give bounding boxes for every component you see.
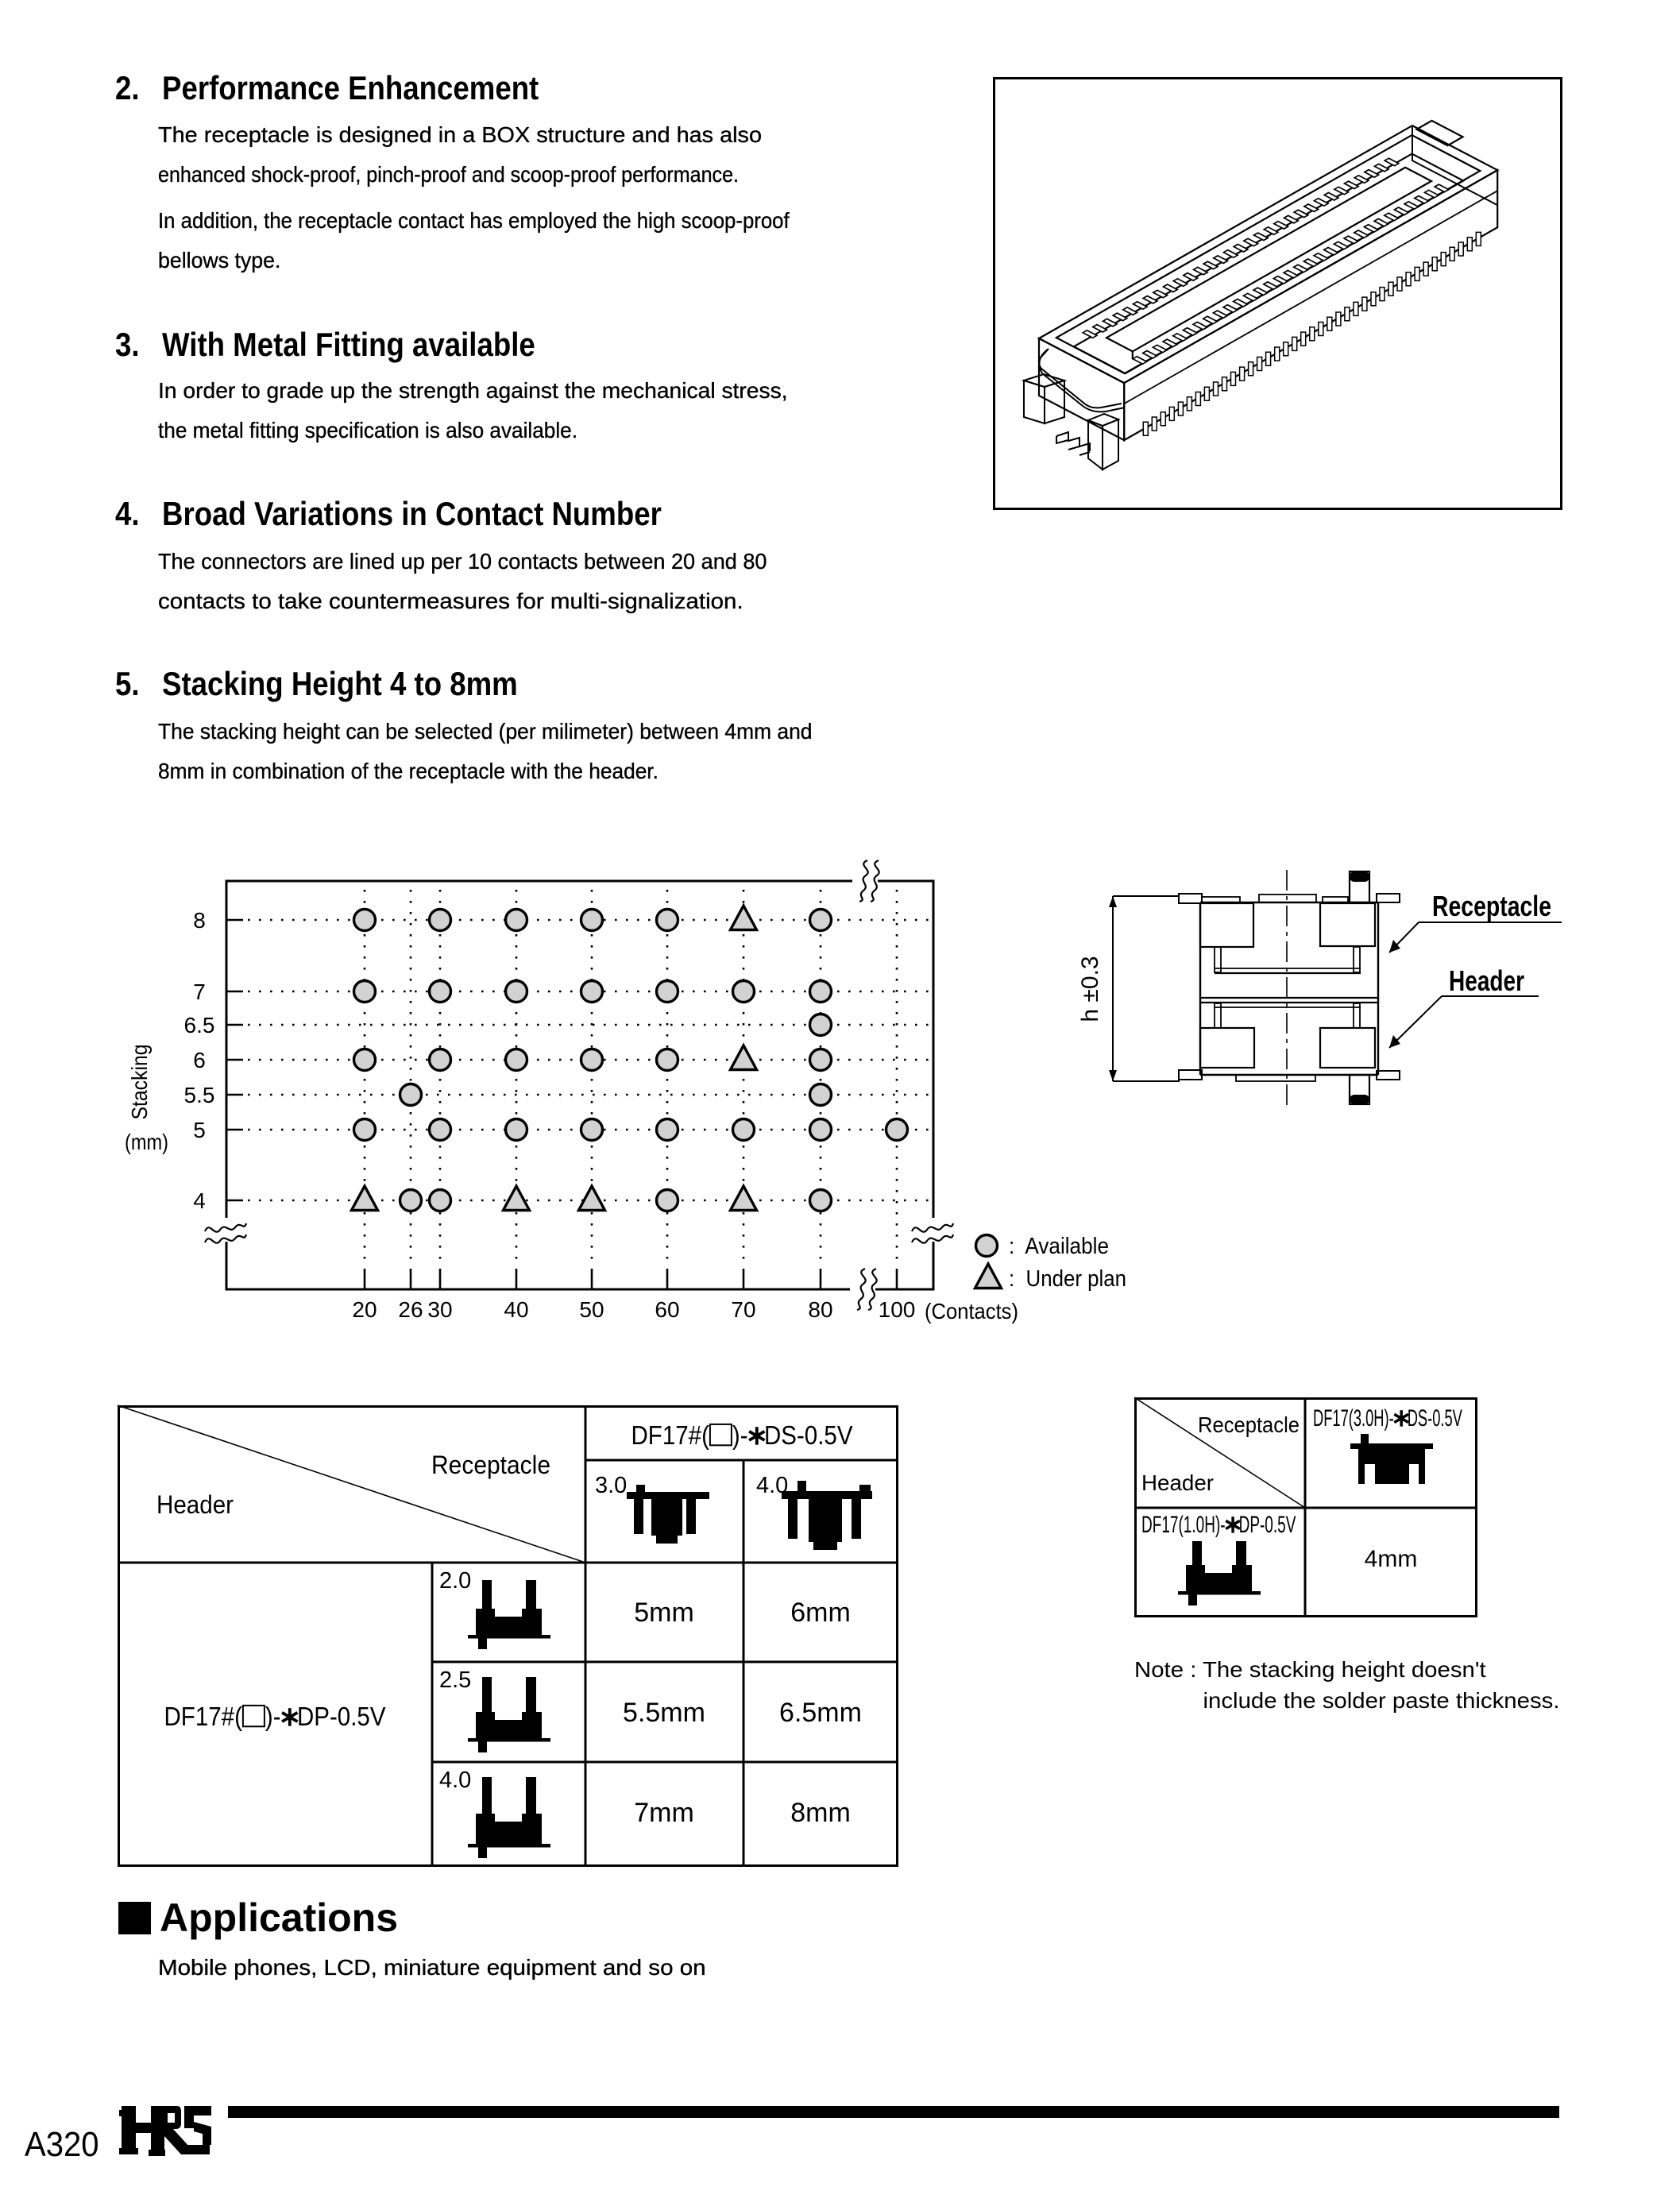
svg-text:50: 50 <box>579 1297 604 1322</box>
svg-text:4: 4 <box>193 1188 206 1213</box>
svg-text:80: 80 <box>808 1297 832 1322</box>
svg-text:20: 20 <box>352 1297 377 1322</box>
svg-text:6.5mm: 6.5mm <box>779 1698 862 1728</box>
svg-text:5mm: 5mm <box>634 1598 694 1628</box>
svg-text:Receptacle: Receptacle <box>1198 1412 1300 1437</box>
svg-text:Receptacle: Receptacle <box>1432 890 1551 922</box>
svg-text:26: 26 <box>398 1297 423 1322</box>
svg-text:Header: Header <box>156 1490 234 1519</box>
svg-text:7mm: 7mm <box>634 1798 694 1828</box>
svg-text:DS-0.5V: DS-0.5V <box>764 1420 853 1450</box>
svg-text:Header: Header <box>1449 964 1524 997</box>
svg-text:6.5: 6.5 <box>184 1013 215 1037</box>
svg-text:DP-0.5V: DP-0.5V <box>1239 1512 1296 1538</box>
svg-text:h ±0.3: h ±0.3 <box>1077 956 1103 1022</box>
svg-text:5: 5 <box>193 1118 206 1142</box>
svg-text:(Contacts): (Contacts) <box>925 1299 1018 1323</box>
svg-text:)-: )- <box>265 1702 281 1731</box>
svg-text:DF17(1.0H)-: DF17(1.0H)- <box>1141 1512 1226 1538</box>
svg-text:2.0: 2.0 <box>439 1568 471 1594</box>
svg-text:Header: Header <box>1141 1470 1214 1495</box>
svg-text:DF17#(: DF17#( <box>631 1420 709 1450</box>
svg-text:4.0: 4.0 <box>439 1768 471 1793</box>
svg-text:: Under plan: : Under plan <box>1009 1266 1126 1292</box>
svg-text:2.5: 2.5 <box>439 1667 471 1693</box>
svg-text:60: 60 <box>655 1297 679 1322</box>
svg-text:(mm): (mm) <box>125 1130 168 1154</box>
svg-text:6mm: 6mm <box>790 1598 851 1628</box>
svg-text:4mm: 4mm <box>1365 1546 1418 1572</box>
svg-text:70: 70 <box>731 1297 755 1322</box>
svg-text:5.5mm: 5.5mm <box>623 1698 705 1728</box>
svg-text:5.5: 5.5 <box>184 1083 215 1107</box>
svg-text:8: 8 <box>193 908 206 933</box>
svg-text:: Available: : Available <box>1009 1234 1109 1259</box>
svg-text:)-: )- <box>732 1420 748 1450</box>
svg-text:40: 40 <box>504 1297 528 1322</box>
svg-text:DS-0.5V: DS-0.5V <box>1408 1405 1462 1432</box>
svg-text:3.0: 3.0 <box>595 1473 627 1498</box>
svg-text:7: 7 <box>193 980 206 1004</box>
svg-text:DP-0.5V: DP-0.5V <box>297 1702 386 1731</box>
svg-text:Stacking: Stacking <box>127 1045 152 1120</box>
svg-text:DF17#(: DF17#( <box>164 1702 242 1731</box>
svg-text:100: 100 <box>879 1297 916 1322</box>
svg-text:DF17(3.0H)-: DF17(3.0H)- <box>1313 1405 1394 1432</box>
svg-text:6: 6 <box>193 1048 206 1072</box>
svg-text:Receptacle: Receptacle <box>431 1451 550 1479</box>
svg-text:8mm: 8mm <box>790 1798 851 1828</box>
svg-text:30: 30 <box>427 1297 452 1322</box>
